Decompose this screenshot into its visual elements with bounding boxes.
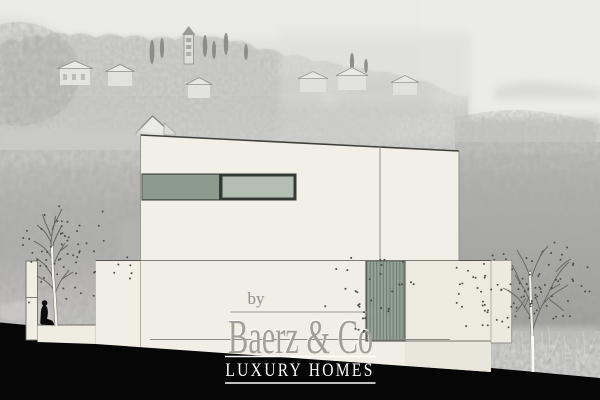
svg-text:by: by <box>248 289 266 308</box>
svg-text:LUXURY HOMES: LUXURY HOMES <box>225 360 374 381</box>
